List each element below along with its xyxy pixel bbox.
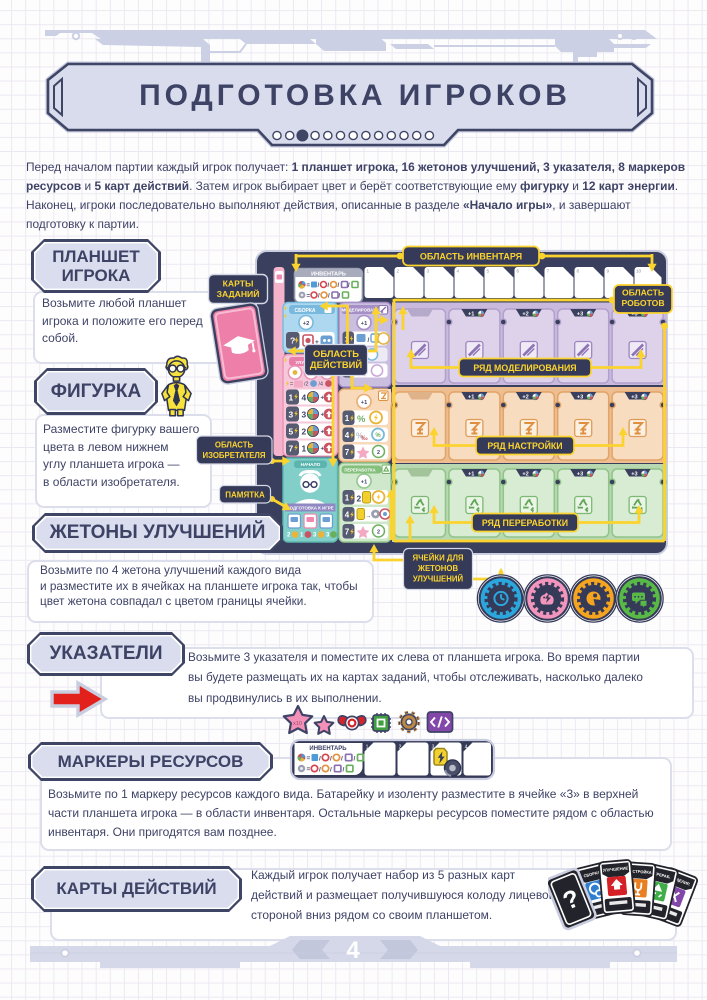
svg-text:3: 3 [432, 745, 435, 751]
svg-text:→: → [366, 514, 372, 520]
svg-text:РЯД ПЕРЕРАБОТКИ: РЯД ПЕРЕРАБОТКИ [482, 518, 568, 528]
svg-text:ИНВЕНТАРЬ: ИНВЕНТАРЬ [311, 272, 346, 278]
svg-text:+1: +1 [468, 472, 474, 478]
svg-text:ЖЕТОНОВ: ЖЕТОНОВ [417, 564, 459, 573]
svg-text:ОБЛАСТЬ ИНВЕНТАРЯ: ОБЛАСТЬ ИНВЕНТАРЯ [420, 252, 522, 262]
svg-text:%: % [357, 413, 366, 424]
svg-text:+3: +3 [631, 395, 637, 401]
svg-text:ОБЛАСТЬ: ОБЛАСТЬ [313, 348, 359, 359]
svg-text:/2: /2 [304, 382, 309, 388]
svg-text:3: 3 [427, 269, 430, 274]
svg-text:/: / [354, 756, 356, 763]
svg-text:3: 3 [289, 410, 294, 420]
svg-text:1: 1 [345, 494, 350, 503]
svg-text:СБОРКА: СБОРКА [294, 308, 315, 314]
svg-text:4: 4 [457, 269, 460, 274]
svg-text:РЯД МОДЕЛИРОВАНИЯ: РЯД МОДЕЛИРОВАНИЯ [473, 363, 576, 373]
svg-text:4: 4 [302, 393, 307, 403]
svg-text:+1: +1 [468, 395, 474, 401]
svg-text:ЗАДАНИЙ: ЗАДАНИЙ [217, 288, 260, 299]
svg-text:+2: +2 [522, 472, 528, 478]
svg-text:7: 7 [289, 444, 294, 454]
svg-text:8: 8 [577, 269, 580, 274]
svg-text:РЯД НАСТРОЙКИ: РЯД НАСТРОЙКИ [487, 440, 562, 451]
svg-text:РОБОТОВ: РОБОТОВ [621, 298, 664, 308]
svg-text:ОБЛАСТЬ: ОБЛАСТЬ [622, 288, 664, 298]
svg-text:2: 2 [377, 530, 380, 536]
svg-text:4: 4 [465, 745, 468, 751]
svg-text:1: 1 [345, 414, 350, 423]
svg-text:ПАМЯТКА: ПАМЯТКА [225, 491, 265, 500]
svg-text:1: 1 [366, 745, 369, 751]
svg-text:ЯЧЕЙКИ ДЛЯ: ЯЧЕЙКИ ДЛЯ [412, 554, 463, 563]
svg-text:1: 1 [289, 393, 294, 403]
svg-text:+1: +1 [361, 480, 367, 486]
svg-text:2: 2 [357, 494, 362, 504]
svg-text:/: / [319, 767, 321, 774]
svg-text:/: / [368, 337, 370, 344]
svg-text:/: / [330, 767, 332, 774]
svg-text:КАРТЫ: КАРТЫ [223, 279, 254, 289]
svg-text:1: 1 [367, 269, 370, 274]
svg-text:/: / [330, 756, 332, 763]
svg-text:НАЧАЛО: НАЧАЛО [301, 462, 321, 467]
svg-text:=: = [307, 293, 311, 299]
svg-text:+2: +2 [303, 321, 309, 327]
svg-text:+3: +3 [577, 395, 583, 401]
svg-text:4: 4 [345, 511, 350, 520]
svg-text:/: / [343, 767, 345, 774]
svg-text:5: 5 [487, 269, 490, 274]
svg-text:УЛУЧШЕНИЙ: УЛУЧШЕНИЙ [413, 575, 464, 584]
svg-text:7: 7 [345, 528, 350, 537]
svg-text:6: 6 [517, 269, 520, 274]
svg-text:5: 5 [289, 427, 294, 437]
svg-text:x10: x10 [293, 721, 302, 727]
svg-text:4: 4 [346, 937, 360, 964]
svg-text:=: = [307, 766, 311, 773]
svg-text:+2: +2 [522, 395, 528, 401]
svg-text:2: 2 [377, 450, 380, 456]
svg-text:7: 7 [345, 448, 350, 457]
svg-text:+3: +3 [631, 472, 637, 478]
svg-text:ИЗОБРЕТАТЕЛЯ: ИЗОБРЕТАТЕЛЯ [202, 451, 265, 460]
svg-text:10: 10 [636, 269, 642, 274]
svg-text:=: = [290, 382, 293, 388]
svg-text:1: 1 [302, 444, 307, 454]
svg-text:2: 2 [302, 427, 307, 437]
svg-text:ОБЛАСТЬ: ОБЛАСТЬ [215, 441, 254, 450]
svg-text:+3: +3 [577, 472, 583, 478]
svg-text:%: % [375, 433, 381, 439]
svg-text:/: / [341, 756, 343, 763]
svg-text:9: 9 [607, 269, 610, 274]
svg-text:ПОДГОТОВКА К ИГРЕ: ПОДГОТОВКА К ИГРЕ [286, 506, 333, 511]
svg-text:2: 2 [399, 745, 402, 751]
svg-text:ПЕРЕРАБОТКА: ПЕРЕРАБОТКА [344, 468, 375, 473]
svg-text:4: 4 [345, 431, 350, 440]
svg-text:+2: +2 [522, 312, 528, 318]
svg-text:ИНВЕНТАРЬ: ИНВЕНТАРЬ [309, 746, 347, 752]
svg-text:ДЕЙСТВИЙ: ДЕЙСТВИЙ [310, 359, 362, 370]
svg-text:=: = [307, 755, 311, 762]
svg-text:3: 3 [302, 410, 307, 420]
svg-text:‰: ‰ [361, 435, 368, 442]
svg-text:/4: /4 [319, 382, 324, 388]
svg-text:+1: +1 [361, 400, 367, 406]
svg-text:?: ? [290, 336, 295, 346]
svg-text:=: = [307, 283, 311, 289]
svg-text:/: / [319, 756, 321, 763]
svg-text:+3: +3 [577, 312, 583, 318]
svg-text:+1: +1 [468, 312, 474, 318]
svg-text:2: 2 [397, 269, 400, 274]
svg-text:7: 7 [547, 269, 550, 274]
svg-text:+1: +1 [361, 321, 367, 327]
